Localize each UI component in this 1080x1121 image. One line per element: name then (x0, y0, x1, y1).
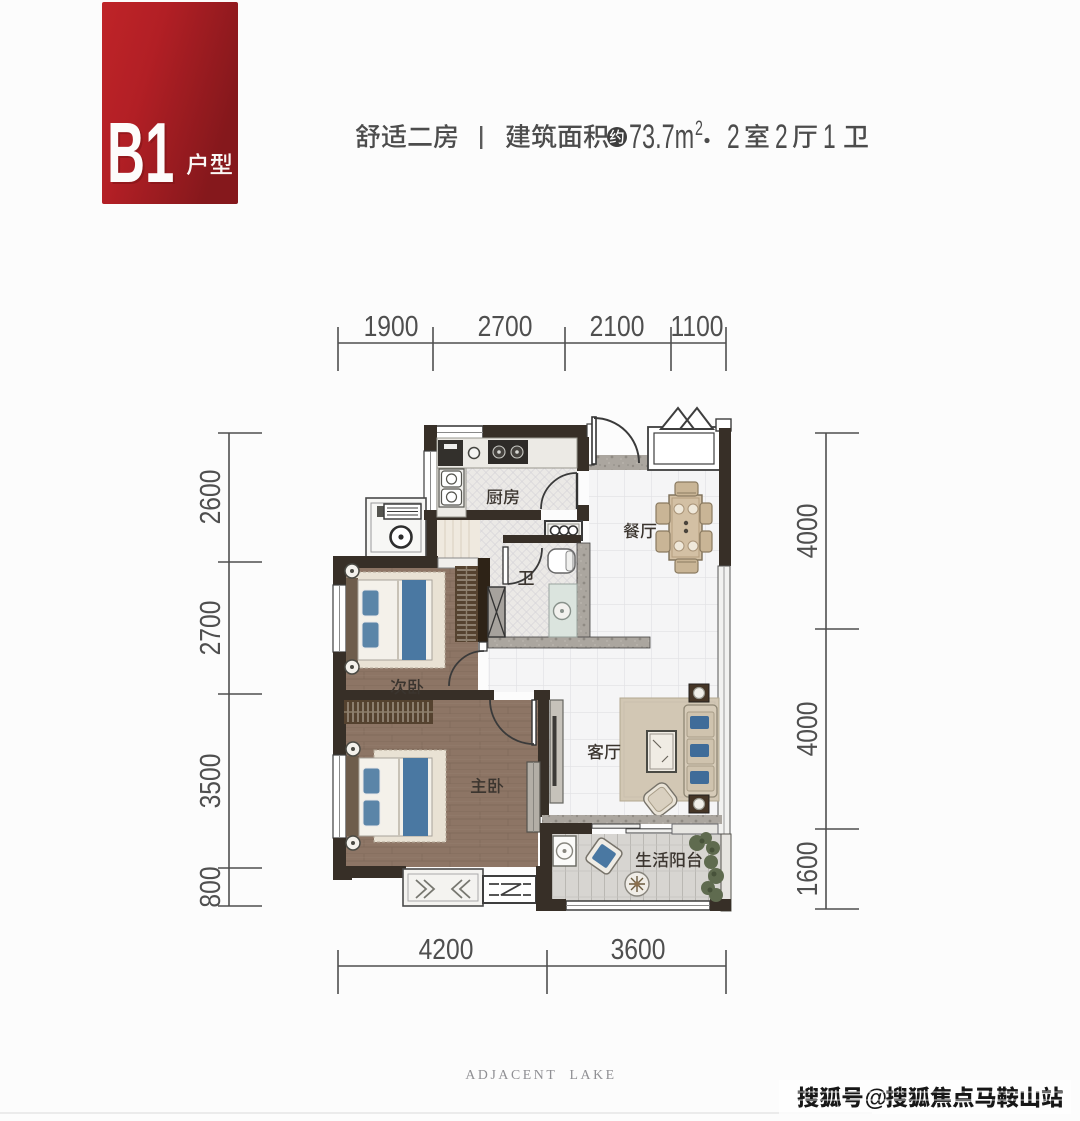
svg-text:ADJACENT LAKE: ADJACENT LAKE (465, 1067, 616, 1082)
svg-text:2: 2 (727, 118, 740, 156)
svg-text:2700: 2700 (478, 310, 533, 342)
svg-text:1: 1 (823, 118, 836, 156)
svg-text:2100: 2100 (590, 310, 645, 342)
svg-text:3600: 3600 (611, 933, 666, 965)
svg-text:@: @ (865, 1085, 887, 1111)
svg-text:2: 2 (775, 118, 788, 156)
svg-text:2700: 2700 (194, 601, 226, 656)
svg-text:2: 2 (695, 116, 703, 139)
svg-text:3500: 3500 (194, 754, 226, 809)
svg-text:4000: 4000 (791, 702, 823, 757)
svg-text:2600: 2600 (194, 470, 226, 525)
svg-text:4000: 4000 (791, 504, 823, 559)
svg-text:73.7m: 73.7m (629, 118, 694, 157)
svg-text:4200: 4200 (419, 933, 474, 965)
svg-text:800: 800 (194, 866, 226, 907)
svg-text:1900: 1900 (364, 310, 419, 342)
svg-text:1100: 1100 (671, 310, 724, 342)
svg-text:B1: B1 (107, 105, 174, 200)
svg-text:1600: 1600 (791, 842, 823, 897)
